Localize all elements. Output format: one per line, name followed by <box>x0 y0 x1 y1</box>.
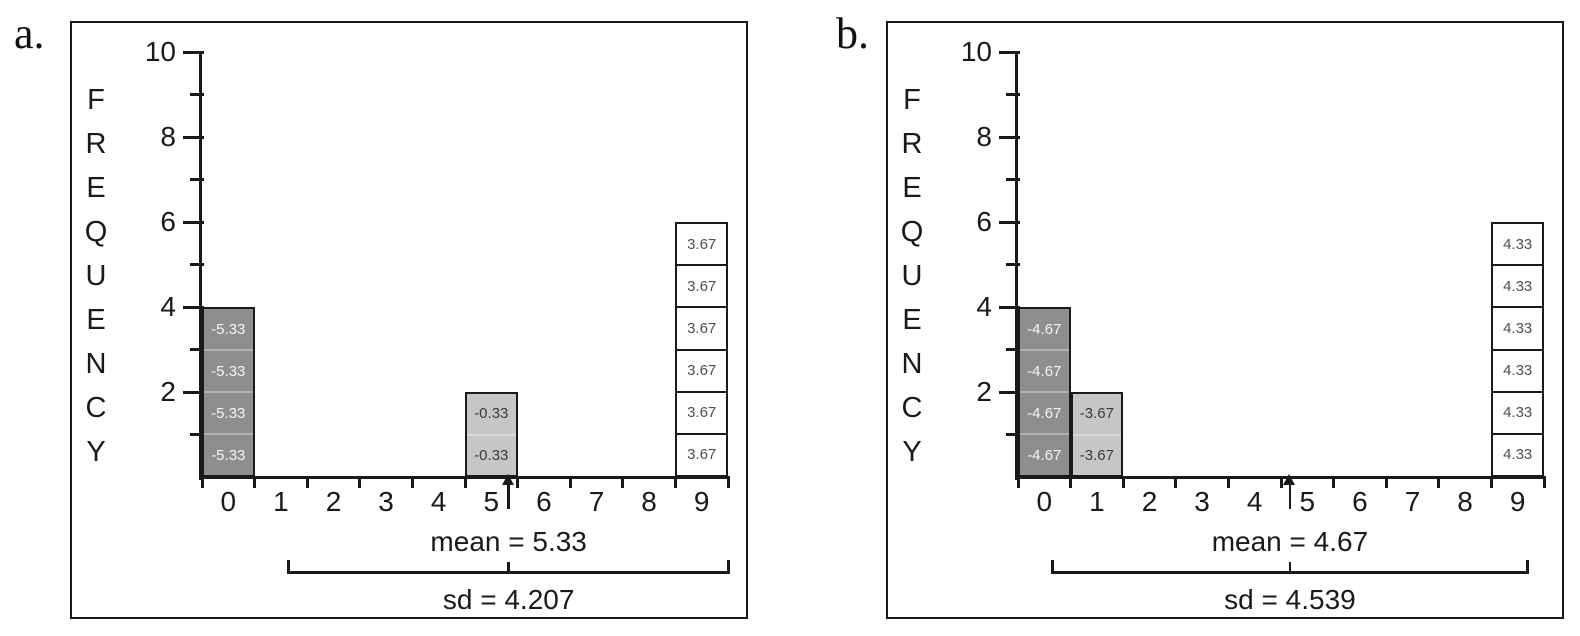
y-axis-title-letter: Y <box>74 430 118 474</box>
x-tick-label: 7 <box>570 485 623 519</box>
bar-cell: -3.67 <box>1073 394 1122 434</box>
bar-cell: 3.67 <box>677 391 726 433</box>
bar-cell-deviation-label: 3.67 <box>687 446 716 463</box>
bar-cell: 3.67 <box>677 264 726 306</box>
y-tick-label: 8 <box>110 121 176 153</box>
x-tick-label: 9 <box>1491 485 1544 519</box>
x-tick-label: 0 <box>1018 485 1071 519</box>
y-tick-label: 10 <box>110 36 176 68</box>
bar-cell: 3.67 <box>677 306 726 348</box>
chart-a-frame: FREQUENCY1086420123456789-5.33-5.33-5.33… <box>70 21 748 619</box>
figure: a. FREQUENCY1086420123456789-5.33-5.33-5… <box>0 0 1580 636</box>
bar-cell: -5.33 <box>204 433 253 475</box>
bar-cell: 3.67 <box>677 224 726 264</box>
panel-a-label: a. <box>14 12 45 56</box>
mean-label: mean = 5.33 <box>359 527 659 557</box>
bar-cell: -4.67 <box>1020 433 1069 475</box>
y-axis-title-letter: F <box>74 78 118 122</box>
bar-cell: -5.33 <box>204 349 253 391</box>
bar-cell: -4.67 <box>1020 309 1069 349</box>
sd-label: sd = 4.207 <box>359 585 659 615</box>
histogram-bar: 4.334.334.334.334.334.33 <box>1491 222 1544 477</box>
bar-cell-deviation-label: 4.33 <box>1503 362 1532 379</box>
bar-cell-deviation-label: -4.67 <box>1027 405 1061 422</box>
x-tick-label: 2 <box>1123 485 1176 519</box>
y-tick-label: 2 <box>926 376 992 408</box>
bar-cell: -4.67 <box>1020 391 1069 433</box>
y-axis-title-letter: Y <box>890 430 934 474</box>
bar-cell-deviation-label: -5.33 <box>211 405 245 422</box>
y-tick-label: 4 <box>110 291 176 323</box>
sd-bracket-end-right <box>727 560 730 574</box>
sd-bracket-center-tick <box>507 562 510 573</box>
x-tick-label: 9 <box>675 485 728 519</box>
histogram-bar: -4.67-4.67-4.67-4.67 <box>1018 307 1071 477</box>
x-tick-label: 6 <box>518 485 571 519</box>
sd-bracket-end-left <box>287 560 290 574</box>
bar-cell-deviation-label: 3.67 <box>687 278 716 295</box>
histogram-bar: -0.33-0.33 <box>465 392 518 477</box>
y-tick-label: 6 <box>926 206 992 238</box>
bar-cell: 4.33 <box>1493 224 1542 264</box>
bar-cell-deviation-label: 3.67 <box>687 320 716 337</box>
bar-cell: -3.67 <box>1073 434 1122 476</box>
bar-cell: -0.33 <box>467 434 516 476</box>
bar-cell-deviation-label: -5.33 <box>211 321 245 338</box>
bar-cell-deviation-label: -3.67 <box>1080 447 1114 464</box>
y-tick-label: 4 <box>926 291 992 323</box>
bar-cell: -4.67 <box>1020 349 1069 391</box>
bar-cell: 3.67 <box>677 433 726 475</box>
x-tick-label: 1 <box>255 485 308 519</box>
bar-cell-deviation-label: 4.33 <box>1503 446 1532 463</box>
mean-arrow-stem <box>1289 484 1292 509</box>
panel-b-label: b. <box>836 12 869 56</box>
bar-cell: 4.33 <box>1493 391 1542 433</box>
y-axis-title-letter: E <box>74 166 118 210</box>
bar-cell-deviation-label: 3.67 <box>687 362 716 379</box>
bar-cell-deviation-label: 4.33 <box>1503 320 1532 337</box>
bar-cell-deviation-label: -4.67 <box>1027 321 1061 338</box>
y-tick-label: 8 <box>926 121 992 153</box>
bar-cell-deviation-label: -0.33 <box>474 405 508 422</box>
bar-cell: 3.67 <box>677 349 726 391</box>
bar-cell: 4.33 <box>1493 306 1542 348</box>
x-tick-label: 1 <box>1071 485 1124 519</box>
mean-arrow-stem <box>507 484 510 509</box>
bar-cell-deviation-label: 3.67 <box>687 236 716 253</box>
histogram-bar: -5.33-5.33-5.33-5.33 <box>202 307 255 477</box>
histogram-bar: 3.673.673.673.673.673.67 <box>675 222 728 477</box>
bar-cell-deviation-label: -4.67 <box>1027 447 1061 464</box>
x-tick-label: 8 <box>623 485 676 519</box>
mean-label: mean = 4.67 <box>1140 527 1440 557</box>
x-tick-label: 4 <box>412 485 465 519</box>
bar-cell-deviation-label: -5.33 <box>211 363 245 380</box>
bar-cell: -5.33 <box>204 391 253 433</box>
bar-cell: 4.33 <box>1493 264 1542 306</box>
bar-cell-deviation-label: 4.33 <box>1503 278 1532 295</box>
y-tick-label: 6 <box>110 206 176 238</box>
bar-cell: -0.33 <box>467 394 516 434</box>
sd-bracket-end-right <box>1526 560 1529 574</box>
histogram-bar: -3.67-3.67 <box>1071 392 1124 477</box>
y-tick-label: 10 <box>926 36 992 68</box>
bar-cell-deviation-label: 4.33 <box>1503 236 1532 253</box>
bar-cell: 4.33 <box>1493 433 1542 475</box>
x-tick-label: 0 <box>202 485 255 519</box>
bar-cell-deviation-label: -3.67 <box>1080 405 1114 422</box>
x-tick-label: 8 <box>1439 485 1492 519</box>
y-axis-title-letter: E <box>890 166 934 210</box>
bar-cell-deviation-label: -4.67 <box>1027 363 1061 380</box>
sd-label: sd = 4.539 <box>1140 585 1440 615</box>
sd-bracket-center-tick <box>1289 562 1292 573</box>
y-tick-label: 2 <box>110 376 176 408</box>
x-tick-label: 7 <box>1386 485 1439 519</box>
chart-b-frame: FREQUENCY1086420123456789-4.67-4.67-4.67… <box>886 21 1564 619</box>
bar-cell-deviation-label: 3.67 <box>687 404 716 421</box>
x-tick-label: 4 <box>1228 485 1281 519</box>
x-tick-label: 3 <box>360 485 413 519</box>
bar-cell: 4.33 <box>1493 349 1542 391</box>
x-tick-label: 3 <box>1176 485 1229 519</box>
x-tick-label: 2 <box>307 485 360 519</box>
y-axis-title-letter: F <box>890 78 934 122</box>
bar-cell-deviation-label: 4.33 <box>1503 404 1532 421</box>
bar-cell-deviation-label: -5.33 <box>211 447 245 464</box>
bar-cell-deviation-label: -0.33 <box>474 447 508 464</box>
bar-cell: -5.33 <box>204 309 253 349</box>
sd-bracket-end-left <box>1051 560 1054 574</box>
x-tick-label: 6 <box>1334 485 1387 519</box>
